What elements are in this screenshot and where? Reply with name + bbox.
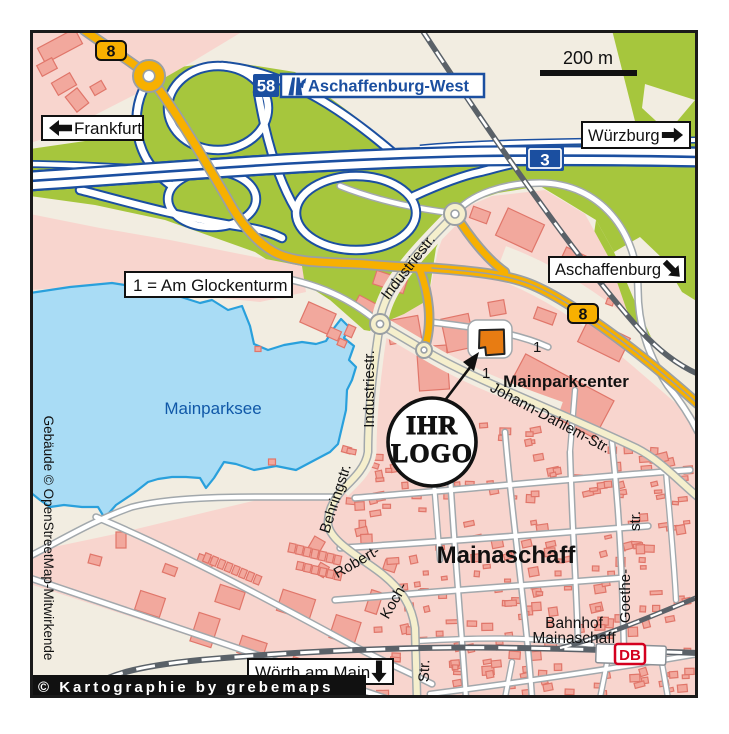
svg-text:© Kartographie by grebemaps: © Kartographie by grebemaps	[38, 679, 333, 696]
svg-text:Goethe-: Goethe-	[617, 569, 634, 623]
svg-text:Mainaschaff: Mainaschaff	[437, 542, 577, 569]
svg-text:1 = Am Glockenturm: 1 = Am Glockenturm	[133, 276, 287, 295]
svg-text:Frankfurt: Frankfurt	[74, 119, 142, 138]
svg-text:1: 1	[482, 365, 490, 382]
svg-text:Str.: Str.	[416, 659, 434, 682]
svg-text:Industriestr.: Industriestr.	[361, 350, 378, 428]
svg-text:Mainparksee: Mainparksee	[164, 399, 261, 418]
svg-text:Gebäude © OpenStreetMap-Mitwir: Gebäude © OpenStreetMap-Mitwirkende	[41, 416, 56, 661]
svg-text:58: 58	[257, 78, 275, 96]
svg-text:IHR: IHR	[406, 411, 458, 440]
svg-text:1: 1	[533, 339, 541, 356]
svg-text:Mainaschaff: Mainaschaff	[532, 630, 616, 647]
svg-text:Mainparkcenter: Mainparkcenter	[503, 372, 629, 391]
svg-text:Aschaffenburg-West: Aschaffenburg-West	[308, 78, 470, 96]
svg-text:LOGO: LOGO	[391, 439, 473, 468]
svg-text:Würzburg: Würzburg	[588, 127, 660, 145]
svg-text:3: 3	[540, 151, 549, 170]
svg-text:str.: str.	[627, 511, 644, 531]
svg-text:DB: DB	[619, 647, 641, 664]
svg-text:8: 8	[579, 307, 588, 324]
svg-text:Aschaffenburg: Aschaffenburg	[555, 261, 661, 279]
svg-text:8: 8	[107, 44, 116, 61]
svg-text:200 m: 200 m	[563, 48, 613, 68]
